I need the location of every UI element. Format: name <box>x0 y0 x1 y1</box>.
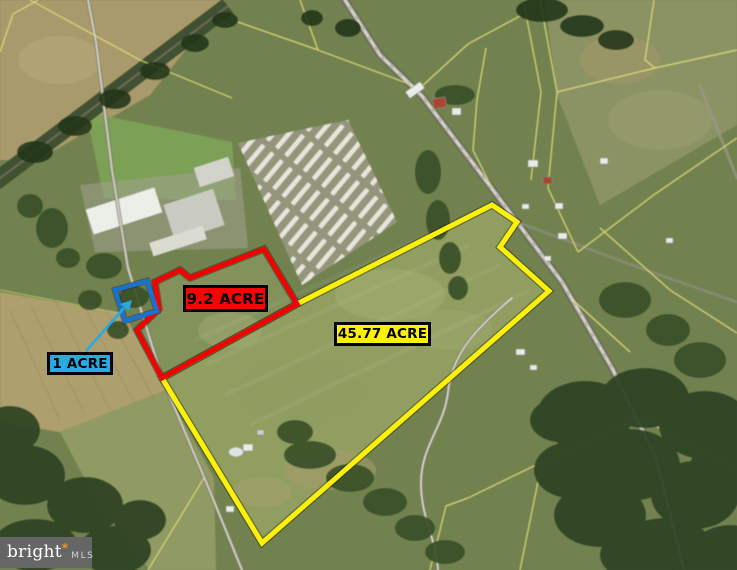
terrain-layer <box>0 0 737 570</box>
label-1-acre: 1 ACRE <box>47 352 113 375</box>
satellite-imagery <box>0 0 737 570</box>
brightmls-brand-text: bright <box>7 544 62 561</box>
brightmls-watermark: bright * MLS <box>0 537 92 568</box>
label-45.77-acre: 45.77 ACRE <box>334 322 431 346</box>
label-9.2-acre: 9.2 ACRE <box>183 285 268 312</box>
brightmls-mls-text: MLS <box>71 552 94 561</box>
brightmls-asterisk-icon: * <box>62 542 68 554</box>
aerial-parcel-map: 45.77 ACRE 9.2 ACRE 1 ACRE bright * MLS <box>0 0 737 570</box>
